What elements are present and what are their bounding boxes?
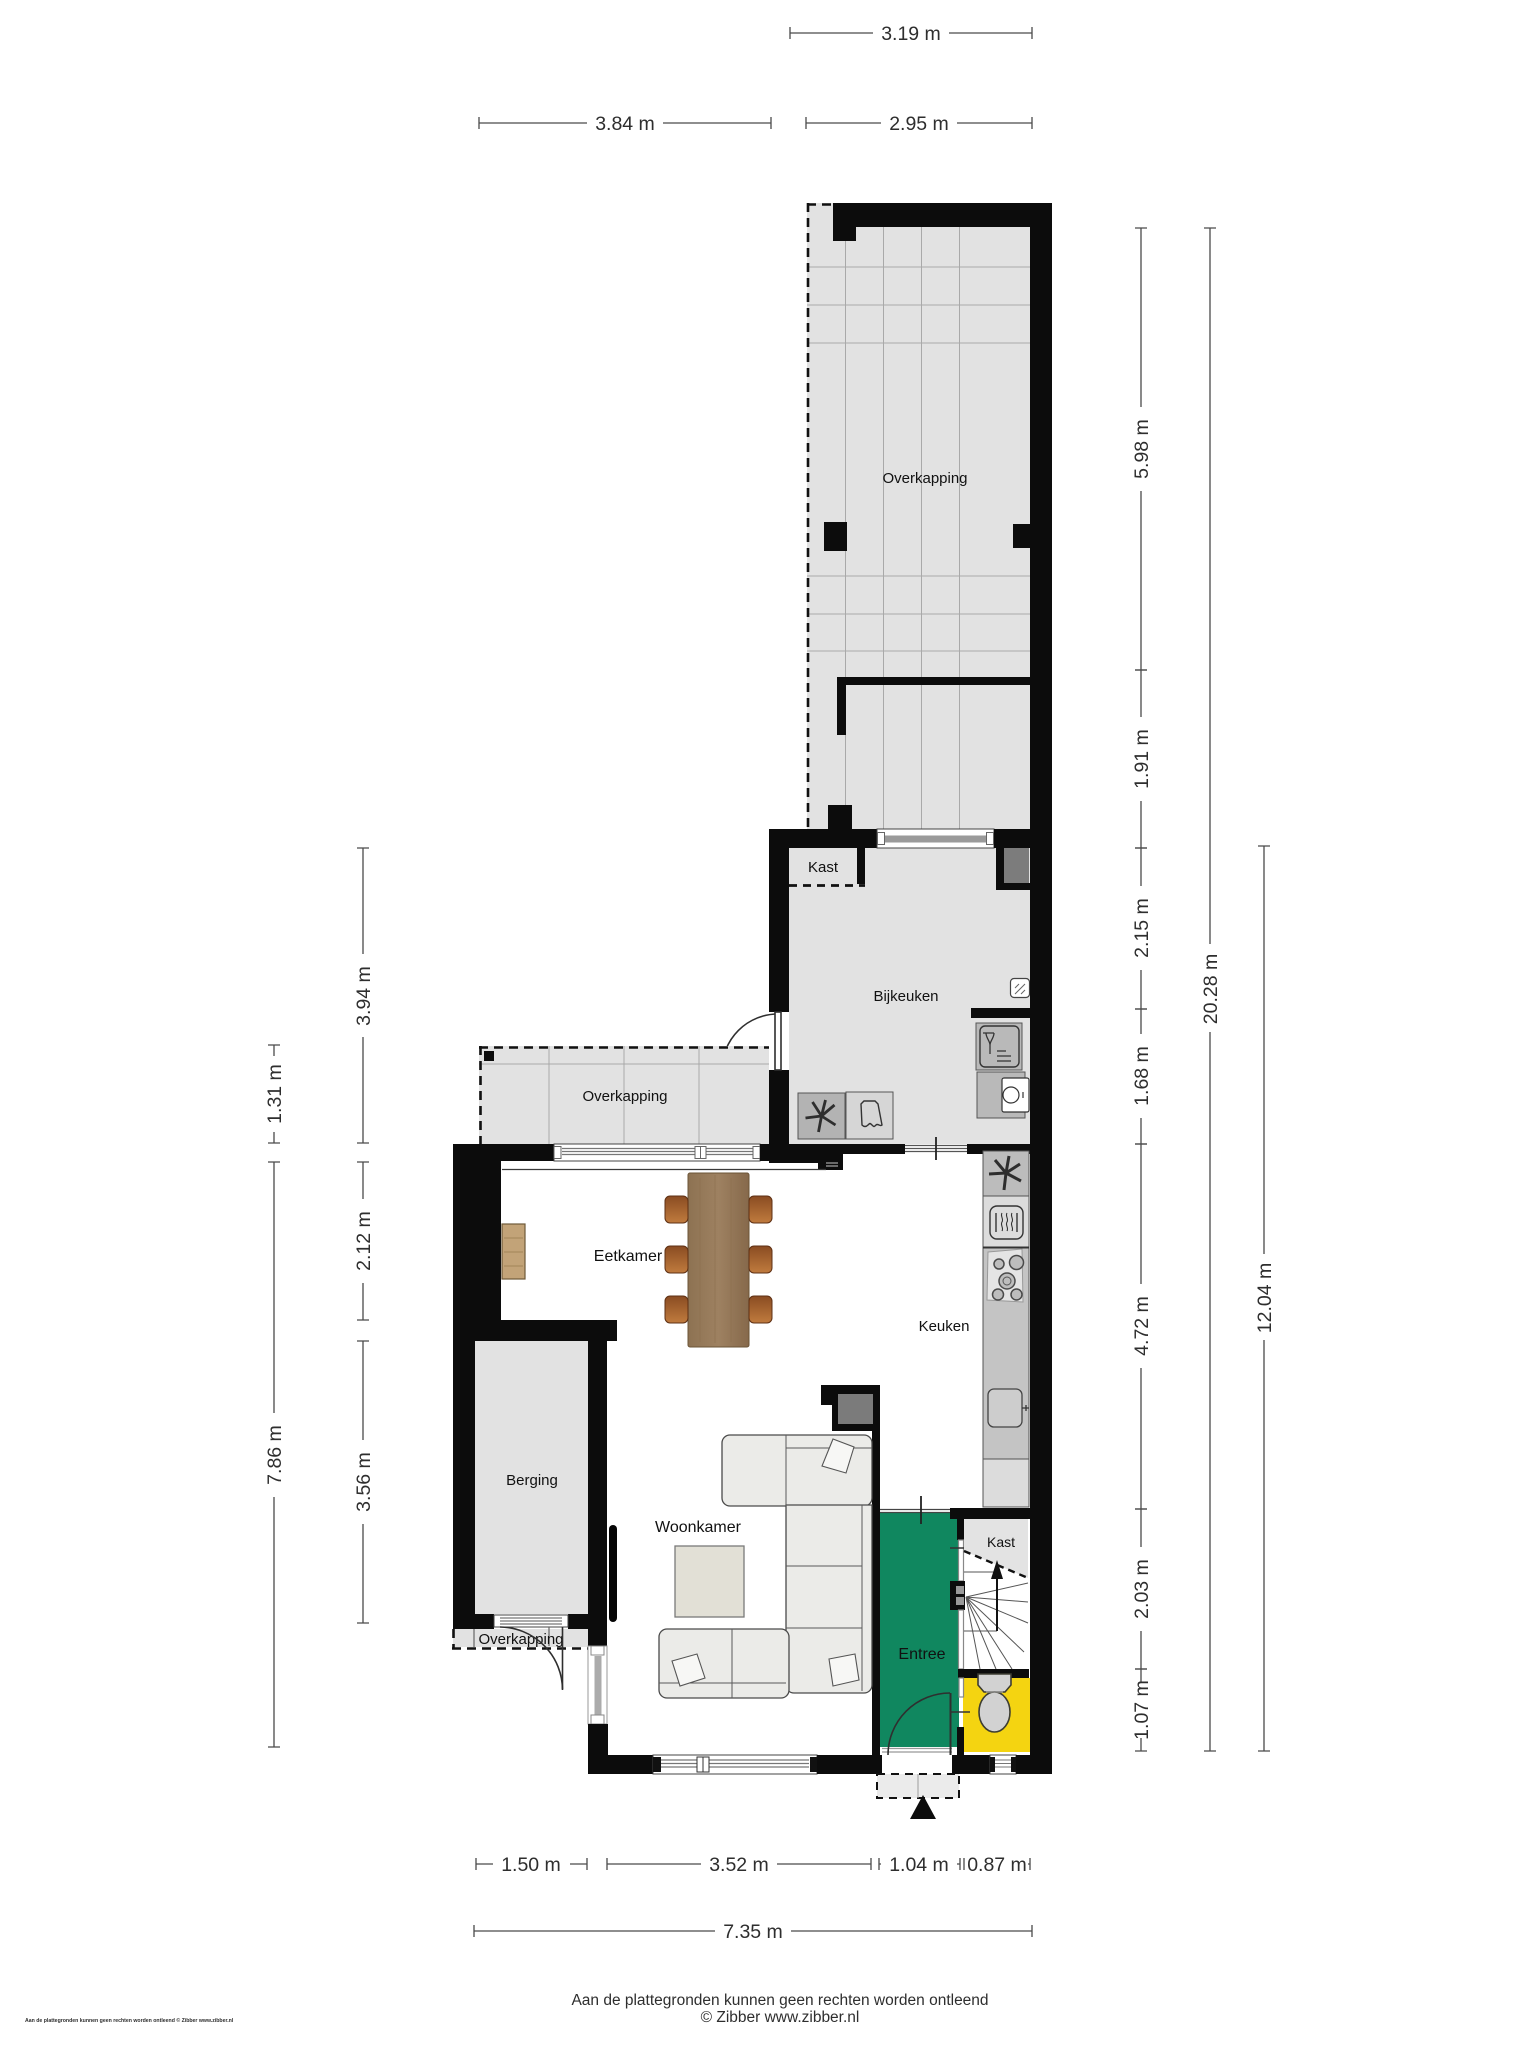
svg-text:Eetkamer: Eetkamer [594, 1248, 663, 1265]
svg-text:Overkapping: Overkapping [882, 470, 967, 487]
svg-text:3.52 m: 3.52 m [709, 1854, 769, 1876]
svg-text:Overkapping: Overkapping [478, 1631, 563, 1648]
svg-text:1.04 m: 1.04 m [889, 1854, 949, 1876]
svg-text:7.86 m: 7.86 m [264, 1425, 286, 1485]
svg-text:2.12 m: 2.12 m [353, 1211, 375, 1271]
svg-text:2.03 m: 2.03 m [1131, 1559, 1153, 1619]
svg-text:Bijkeuken: Bijkeuken [873, 988, 938, 1005]
svg-text:Kast: Kast [808, 859, 839, 876]
svg-text:Kast: Kast [987, 1534, 1015, 1550]
svg-text:2.95 m: 2.95 m [889, 113, 949, 135]
svg-text:1.91 m: 1.91 m [1131, 729, 1153, 789]
svg-text:4.72 m: 4.72 m [1131, 1296, 1153, 1356]
svg-text:3.84 m: 3.84 m [595, 113, 655, 135]
svg-text:1.31 m: 1.31 m [264, 1064, 286, 1124]
svg-text:3.56 m: 3.56 m [353, 1452, 375, 1512]
svg-text:3.94 m: 3.94 m [353, 966, 375, 1026]
svg-text:1.07 m: 1.07 m [1131, 1680, 1153, 1740]
svg-text:5.98 m: 5.98 m [1131, 419, 1153, 479]
svg-text:20.28 m: 20.28 m [1200, 954, 1222, 1024]
svg-text:1.68 m: 1.68 m [1131, 1046, 1153, 1106]
svg-text:0.87 m: 0.87 m [967, 1854, 1027, 1876]
svg-text:Berging: Berging [506, 1472, 558, 1489]
svg-text:Keuken: Keuken [919, 1318, 970, 1335]
svg-text:Overkapping: Overkapping [582, 1088, 667, 1105]
svg-text:1.50 m: 1.50 m [501, 1854, 561, 1876]
svg-text:Aan de plattegronden kunnen ge: Aan de plattegronden kunnen geen rechten… [25, 2017, 234, 2024]
svg-text:2.15 m: 2.15 m [1131, 898, 1153, 958]
svg-text:Woonkamer: Woonkamer [655, 1519, 742, 1536]
svg-text:Aan de plattegronden kunnen ge: Aan de plattegronden kunnen geen rechten… [571, 1992, 988, 2009]
svg-text:© Zibber www.zibber.nl: © Zibber www.zibber.nl [701, 2009, 860, 2026]
svg-text:12.04 m: 12.04 m [1254, 1263, 1276, 1333]
svg-text:3.19 m: 3.19 m [881, 23, 941, 45]
svg-text:Entree: Entree [898, 1646, 945, 1663]
svg-text:7.35 m: 7.35 m [723, 1921, 783, 1943]
